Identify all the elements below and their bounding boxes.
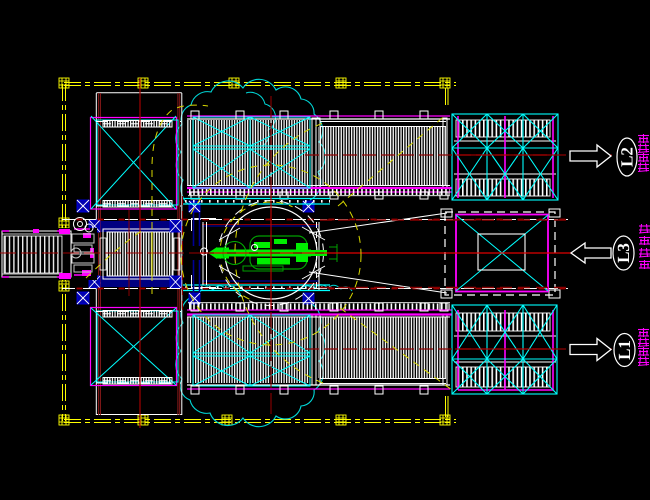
- svg-text:L1: L1: [615, 340, 634, 360]
- svg-text:L3: L3: [614, 243, 633, 263]
- svg-text:L2: L2: [618, 147, 637, 167]
